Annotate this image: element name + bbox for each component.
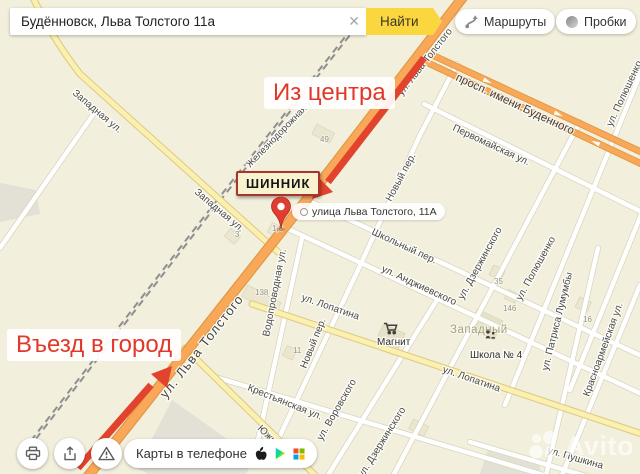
routes-button[interactable]: Маршруты [455, 9, 555, 34]
traffic-button[interactable]: Пробки [556, 9, 636, 34]
route-icon [464, 14, 479, 29]
mobile-apps-label: Карты в телефоне [136, 446, 247, 461]
mobile-apps-button[interactable]: Карты в телефоне [124, 439, 317, 468]
svg-text:146: 146 [503, 304, 517, 313]
report-error-button[interactable] [91, 438, 122, 469]
search-input[interactable]: Будённовск, Льва Толстого 11а ✕ [10, 8, 366, 35]
svg-text:49: 49 [320, 135, 329, 144]
traffic-icon [565, 15, 579, 29]
svg-text:3: 3 [235, 230, 240, 239]
location-pin[interactable] [270, 196, 292, 237]
traffic-label: Пробки [584, 15, 627, 29]
poi-label: Школа № 4 [470, 350, 523, 361]
district-label: Западный [450, 324, 508, 336]
map-canvas[interactable]: ул. Льва Толстого просп. имени Буденного… [0, 0, 640, 474]
svg-text:11: 11 [293, 346, 302, 355]
clear-icon[interactable]: ✕ [348, 13, 360, 29]
shinnik-callout: ШИННИК [236, 171, 320, 196]
app-grid-icon [293, 448, 305, 460]
svg-text:16: 16 [583, 315, 592, 324]
annotation-from-center: Из центра [264, 77, 395, 109]
warning-icon [98, 446, 115, 461]
address-text: улица Льва Толстого, 11А [312, 206, 437, 218]
poi-label: Магнит [377, 337, 411, 348]
point-ring-icon [300, 208, 308, 216]
find-button[interactable]: Найти [366, 8, 442, 35]
google-play-icon [274, 447, 286, 460]
svg-text:138: 138 [255, 288, 269, 297]
print-button[interactable] [17, 438, 48, 469]
search-query: Будённовск, Льва Толстого 11а [21, 14, 215, 29]
yandex-map-page: ул. Льва Толстого просп. имени Буденного… [0, 0, 640, 474]
printer-icon [25, 446, 41, 461]
apple-icon [254, 446, 267, 461]
routes-label: Маршруты [484, 15, 546, 29]
address-bubble[interactable]: улица Льва Толстого, 11А [292, 203, 445, 220]
share-icon [62, 446, 78, 462]
annotation-city-entry: Въезд в город [7, 329, 181, 361]
share-button[interactable] [54, 438, 85, 469]
svg-text:35: 35 [494, 277, 503, 286]
